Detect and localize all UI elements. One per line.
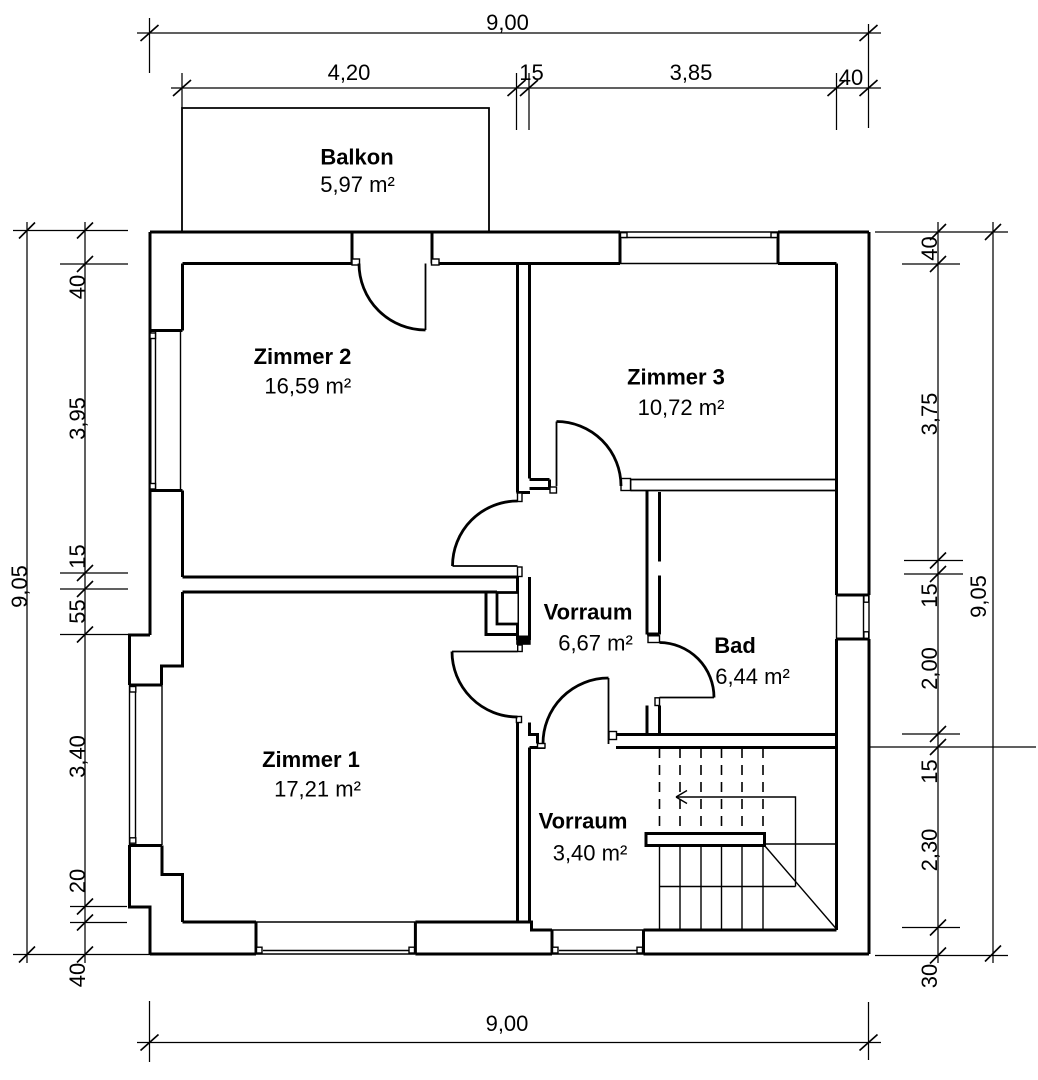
svg-text:Zimmer 3: Zimmer 3 [627, 365, 725, 390]
svg-text:15: 15 [65, 544, 90, 568]
svg-text:6,67 m²: 6,67 m² [558, 631, 633, 656]
svg-text:Zimmer 2: Zimmer 2 [254, 344, 352, 369]
svg-text:40: 40 [65, 963, 90, 987]
svg-text:40: 40 [917, 236, 942, 260]
svg-text:2,30: 2,30 [917, 829, 942, 872]
svg-text:6,44 m²: 6,44 m² [715, 664, 790, 689]
svg-text:20: 20 [65, 869, 90, 893]
svg-text:40: 40 [65, 275, 90, 299]
svg-text:9,00: 9,00 [486, 1011, 529, 1036]
svg-text:10,72 m²: 10,72 m² [638, 395, 725, 420]
svg-text:3,75: 3,75 [917, 393, 942, 436]
svg-text:Vorraum: Vorraum [539, 809, 628, 834]
svg-text:16,59 m²: 16,59 m² [264, 374, 351, 399]
svg-text:15: 15 [917, 583, 942, 607]
svg-text:Bad: Bad [714, 633, 756, 658]
svg-text:3,85: 3,85 [670, 60, 713, 85]
svg-text:Balkon: Balkon [320, 145, 393, 170]
svg-text:3,95: 3,95 [65, 397, 90, 440]
svg-text:17,21 m²: 17,21 m² [274, 777, 361, 802]
svg-text:4,20: 4,20 [328, 60, 371, 85]
svg-text:15: 15 [519, 60, 543, 85]
svg-text:5,97 m²: 5,97 m² [320, 172, 395, 197]
svg-text:9,05: 9,05 [966, 575, 991, 618]
svg-text:15: 15 [917, 759, 942, 783]
svg-text:55: 55 [65, 599, 90, 623]
svg-text:3,40: 3,40 [65, 735, 90, 778]
svg-text:9,05: 9,05 [7, 565, 32, 608]
svg-text:Vorraum: Vorraum [544, 600, 633, 625]
svg-text:40: 40 [839, 65, 863, 90]
svg-text:Zimmer 1: Zimmer 1 [262, 747, 360, 772]
svg-text:9,00: 9,00 [486, 10, 529, 35]
svg-text:3,40 m²: 3,40 m² [553, 841, 628, 866]
svg-text:30: 30 [917, 964, 942, 988]
svg-text:2,00: 2,00 [917, 647, 942, 690]
